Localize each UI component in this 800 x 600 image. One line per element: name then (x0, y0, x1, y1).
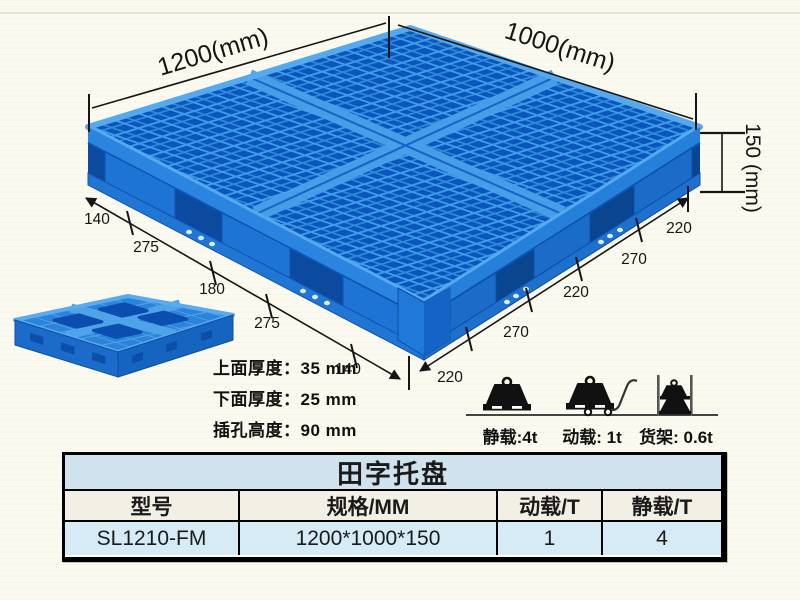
mini-pallet-image (15, 296, 233, 377)
load-capacity-icons (466, 375, 718, 416)
spec-top-thickness: 上面厚度：35 mm (213, 354, 443, 374)
left-chain-label-3: 275 (254, 315, 280, 332)
right-chain-label-3: 270 (621, 251, 647, 268)
static-load-label: 静载:4t (483, 423, 538, 448)
pallet-spec-sheet: { "illustration": { "dim_length_label": … (0, 0, 800, 600)
static-load-weight-icon (483, 378, 531, 411)
left-chain-label-2: 180 (199, 281, 225, 298)
spec-table-data-row: SL1210-FM 1200*1000*150 1 4 (65, 522, 721, 555)
cell-model: SL1210-FM (65, 522, 240, 555)
header-size: 规格/MM (240, 491, 498, 522)
dynamic-load-label: 动载: 1t (562, 423, 622, 448)
right-chain-label-2: 220 (563, 284, 589, 301)
dynamic-load-trolley-icon (566, 377, 637, 415)
spec-table: 田字托盘 型号 规格/MM 动载/T 静载/T SL1210-FM 1200*1… (62, 452, 727, 562)
spec-fork-height: 插孔高度：90 mm (213, 416, 443, 436)
dim-height-label: 150 (mm) (741, 123, 764, 213)
header-dynamic-load: 动载/T (498, 491, 603, 522)
header-static-load: 静载/T (603, 491, 721, 522)
right-chain-label-4: 220 (666, 220, 692, 237)
spec-table-header-row: 型号 规格/MM 动载/T 静载/T (65, 491, 721, 522)
cell-static-load: 4 (603, 522, 721, 555)
left-chain-label-1: 275 (133, 239, 159, 256)
left-chain-label-0: 140 (84, 211, 110, 228)
cell-dynamic-load: 1 (498, 522, 603, 555)
header-model: 型号 (65, 491, 240, 522)
spec-table-title: 田字托盘 (65, 455, 721, 491)
spec-bottom-thickness: 下面厚度：25 mm (213, 385, 443, 405)
rack-load-shelf-icon (657, 375, 693, 416)
right-chain-label-1: 270 (503, 324, 529, 341)
rack-load-label: 货架: 0.6t (639, 423, 713, 448)
pallet-illustration: 1200(mm) 1000(mm) 150 (mm) 140 275 180 2… (0, 0, 800, 450)
cell-size: 1200*1000*150 (240, 522, 498, 555)
